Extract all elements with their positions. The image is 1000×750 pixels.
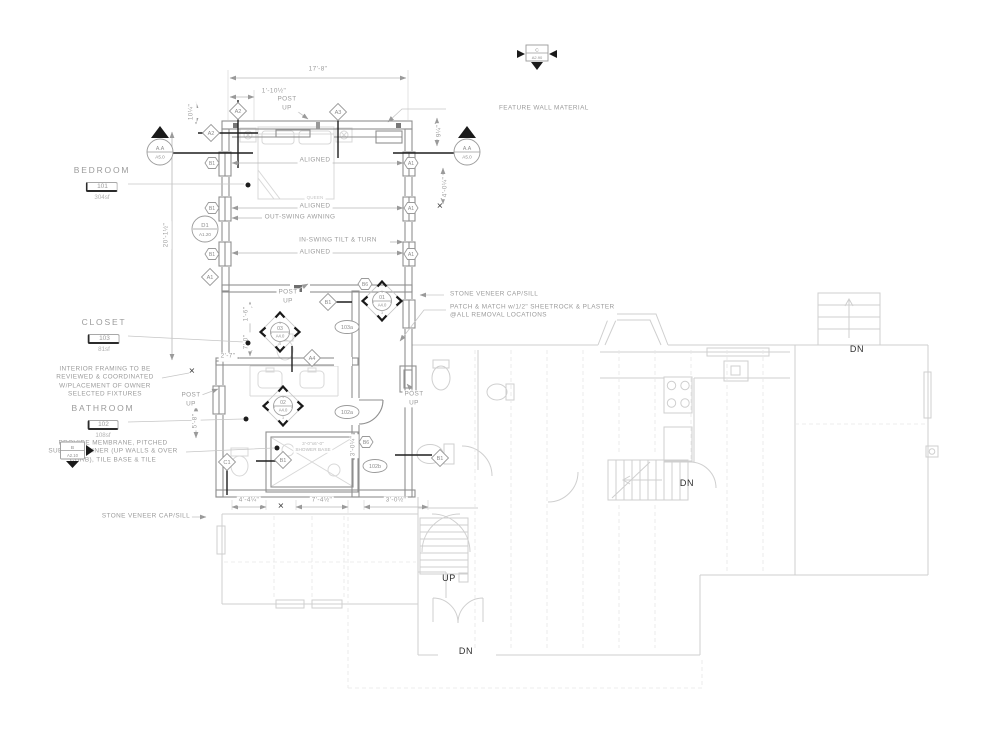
label-aligned-1: ALIGNED [298,157,333,166]
callout-b1: B1 [204,247,220,261]
svg-text:C: C [535,48,539,54]
label-post-up-right: POST UP [403,390,426,407]
svg-text:A1: A1 [207,275,214,281]
svg-text:A3: A3 [335,110,342,116]
svg-text:103a: 103a [341,325,353,331]
dim-3-0half: 3'-0½" [384,497,408,506]
dim-tick-x-3: ✕ [188,367,195,378]
svg-text:A1: A1 [408,161,414,167]
floor-plan-sheet: 17'-8"1'-10½"10¼"9¼"20'-1½"4'-0¼"1'-6"7'… [0,0,1000,750]
dim-2-7: 2'-7" [219,353,238,362]
svg-text:A2: A2 [235,109,242,115]
elevation-marker-aa-left: A.AA5.0 [143,125,177,167]
svg-text:A4.0: A4.0 [276,333,285,338]
callout-a1: A1 [403,156,419,170]
dim-overall-width: 17'-8" [307,66,330,75]
leader-dot [244,417,249,422]
room-label-closet: CLOSET10381sf [82,317,127,353]
callout-b1: B1 [430,448,450,468]
svg-text:102b: 102b [369,464,381,470]
callout-103a: 103a [334,320,360,335]
elevation-marker-aa-right: A.AA5.0 [450,125,484,167]
dim-20-1half: 20'-1½" [163,221,172,249]
svg-text:B6: B6 [363,440,369,446]
svg-text:B: B [71,445,74,451]
room-number-tag: 103 [88,334,120,344]
svg-text:B1: B1 [280,458,287,464]
svg-text:A4.0: A4.0 [279,407,288,412]
svg-text:1: 1 [381,290,383,294]
svg-text:B6: B6 [362,282,368,288]
label-dn-entry: DN [457,645,475,657]
svg-text:A.A: A.A [463,146,472,152]
label-dn-stair: DN [678,477,696,489]
leader-dot [275,446,280,451]
svg-text:C1: C1 [223,460,230,466]
svg-text:03: 03 [277,326,283,332]
leader-dot [246,183,251,188]
callout-a1: A1 [403,201,419,215]
note-interior-framing: INTERIOR FRAMING TO BE REVIEWED & COORDI… [54,365,155,398]
callout-b6: B6 [357,277,373,291]
svg-text:A1: A1 [408,252,414,258]
callout-c1: C1 [217,452,237,472]
svg-text:1: 1 [279,321,281,325]
callout-a1: A1 [403,247,419,261]
svg-text:A4: A4 [309,356,316,362]
svg-text:01: 01 [379,295,385,301]
callout-b1: B1 [273,450,293,470]
label-post-up-left: POST UP [180,391,203,408]
note-stone-veneer-left: STONE VENEER CAP/SILL [100,513,192,522]
note-feature-wall: FEATURE WALL MATERIAL [497,105,591,114]
svg-text:4: 4 [372,300,374,304]
room-number-tag: 102 [87,420,119,430]
interior-elevation-02: 02A4.01234 [260,383,306,429]
callout-a1: A1 [200,267,220,287]
svg-text:3: 3 [279,342,281,346]
svg-text:102a: 102a [341,410,353,416]
svg-text:A4.0: A4.0 [378,302,387,307]
callout-a2: A2 [228,101,248,121]
callout-b6: B6 [358,435,374,449]
label-shower-base: 3'-0"x6'-0" SHOWER BASE [293,441,332,453]
dim-1-6: 1'-6" [243,305,252,324]
svg-text:B1: B1 [209,206,215,212]
svg-text:B1: B1 [437,456,444,462]
callout-a4: A4 [302,348,322,368]
label-post-up-top: POST UP [276,95,299,112]
label-out-swing: OUT-SWING AWNING [263,214,338,223]
callout-102b: 102b [362,459,388,474]
svg-text:A1.20: A1.20 [199,232,211,237]
svg-text:A5.0: A5.0 [155,155,165,160]
svg-text:1: 1 [282,395,284,399]
callout-a2: A2 [201,123,221,143]
dim-tick-x-1: ✕ [277,502,284,513]
svg-text:2: 2 [288,331,290,335]
dim-4-4quarter: 4'-4¼" [237,497,261,506]
elevation-marker-b: BA2.10 [58,435,98,469]
svg-text:A2.90: A2.90 [532,55,543,60]
label-aligned-2: ALIGNED [298,203,333,212]
room-area: 81sf [82,346,127,353]
room-name: CLOSET [82,317,127,327]
label-up: UP [440,572,458,584]
room-label-bathroom: BATHROOM102108sf [72,403,135,439]
svg-text:D1: D1 [201,223,208,229]
label-post-up-mid: POST UP [277,288,300,305]
room-label-bedroom: BEDROOM101304sf [74,165,131,201]
room-name: BEDROOM [74,165,131,175]
svg-text:B1: B1 [209,252,215,258]
section-marker-c: CA2.90 [514,43,560,71]
room-number-tag: 101 [86,182,118,192]
label-aligned-3: ALIGNED [298,249,333,258]
callout-b1: B1 [204,201,220,215]
svg-text:A.A: A.A [156,146,165,152]
interior-elevation-03: 03A4.01234 [257,309,303,355]
dim-9quarter: 9¼" [436,123,445,139]
room-area: 304sf [74,194,131,201]
svg-text:2: 2 [390,300,392,304]
callout-b1: B1 [318,292,338,312]
svg-text:A5.0: A5.0 [462,155,472,160]
callout-b1: B1 [204,156,220,170]
svg-text:02: 02 [280,400,286,406]
dim-10quarter: 10¼" [188,102,197,122]
leader-dot [246,341,251,346]
note-stone-veneer-right: STONE VENEER CAP/SILL [448,291,540,300]
label-dn-stoop: DN [848,343,866,355]
dim-tick-x-2: ✕ [436,202,443,213]
svg-text:A2: A2 [208,131,215,137]
dim-7-4half: 7'-4½" [310,497,334,506]
svg-text:A1: A1 [408,206,414,212]
svg-text:4: 4 [270,331,272,335]
room-name: BATHROOM [72,403,135,413]
svg-text:3: 3 [282,416,284,420]
door-tag-d1: D1A1.20 [190,214,220,244]
svg-text:3: 3 [381,311,383,315]
callout-a3: A3 [328,102,348,122]
annotation-layer: 17'-8"1'-10½"10¼"9¼"20'-1½"4'-0¼"1'-6"7'… [0,0,1000,750]
dim-4-0quarter: 4'-0¼" [442,175,451,199]
label-queen: QUEEN [305,195,326,201]
svg-text:4: 4 [273,405,275,409]
note-patch-match: PATCH & MATCH w/1/2" SHEETROCK & PLASTER… [448,304,617,321]
label-in-swing: IN-SWING TILT & TURN [297,237,379,246]
callout-102a: 102a [334,405,360,420]
dim-5-8: 5'-8" [192,412,201,431]
svg-text:2: 2 [291,405,293,409]
svg-text:B1: B1 [209,161,215,167]
svg-text:B1: B1 [325,300,332,306]
svg-text:A2.10: A2.10 [67,453,79,458]
